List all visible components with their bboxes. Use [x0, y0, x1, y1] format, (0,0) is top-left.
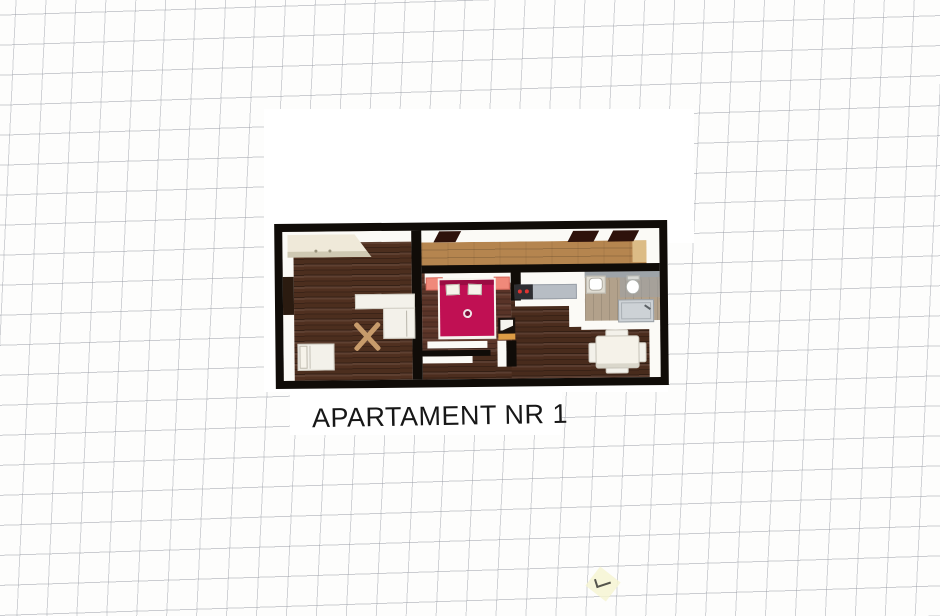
outer-wall — [274, 220, 669, 389]
floor-plan — [274, 220, 669, 389]
plan-caption: APARTAMENT NR 1 — [250, 398, 630, 436]
photo-of-floor-plan: APARTAMENT NR 1 — [0, 0, 940, 616]
